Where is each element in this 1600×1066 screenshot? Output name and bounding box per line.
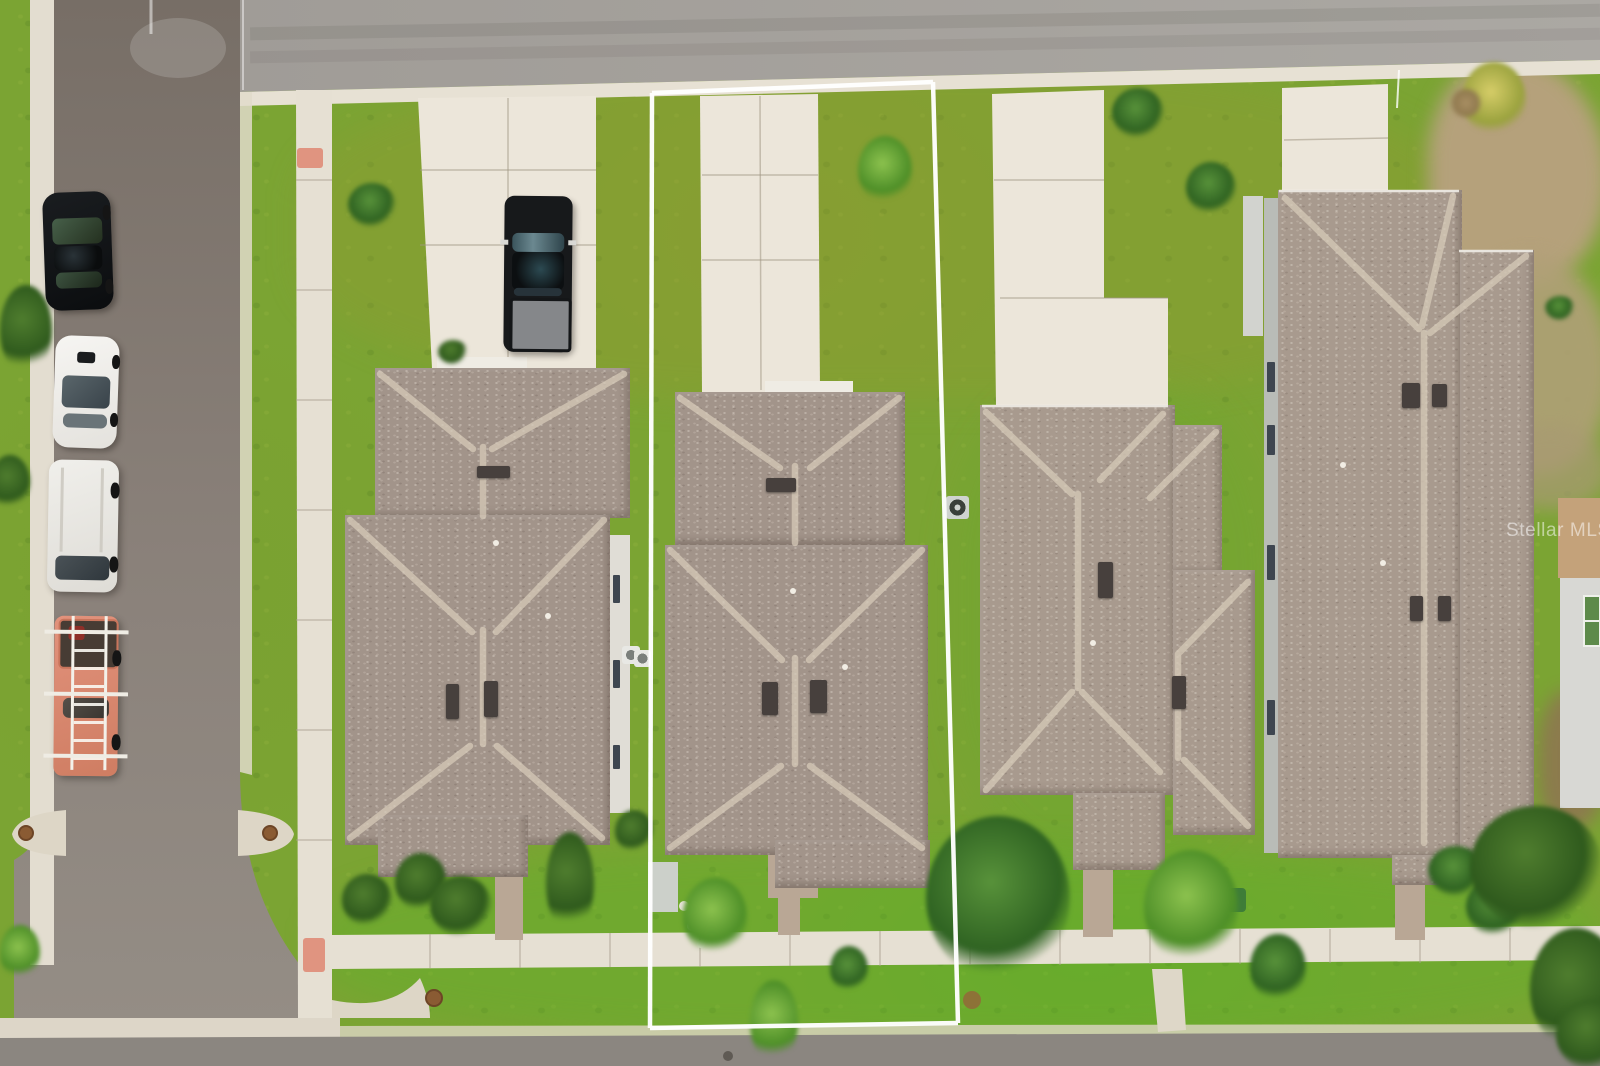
- aerial-photo: Stellar MLS: [0, 0, 1600, 1066]
- lot-line-left: [650, 93, 652, 1028]
- lot-boundary-layer: [0, 0, 1600, 1066]
- lot-line-bottom: [650, 1023, 958, 1028]
- lot-outline: [650, 82, 958, 1028]
- lot-line-top: [652, 82, 933, 93]
- lot-line-right: [933, 82, 958, 1023]
- survey-mark: [1397, 70, 1399, 108]
- mls-watermark: Stellar MLS: [1506, 520, 1600, 542]
